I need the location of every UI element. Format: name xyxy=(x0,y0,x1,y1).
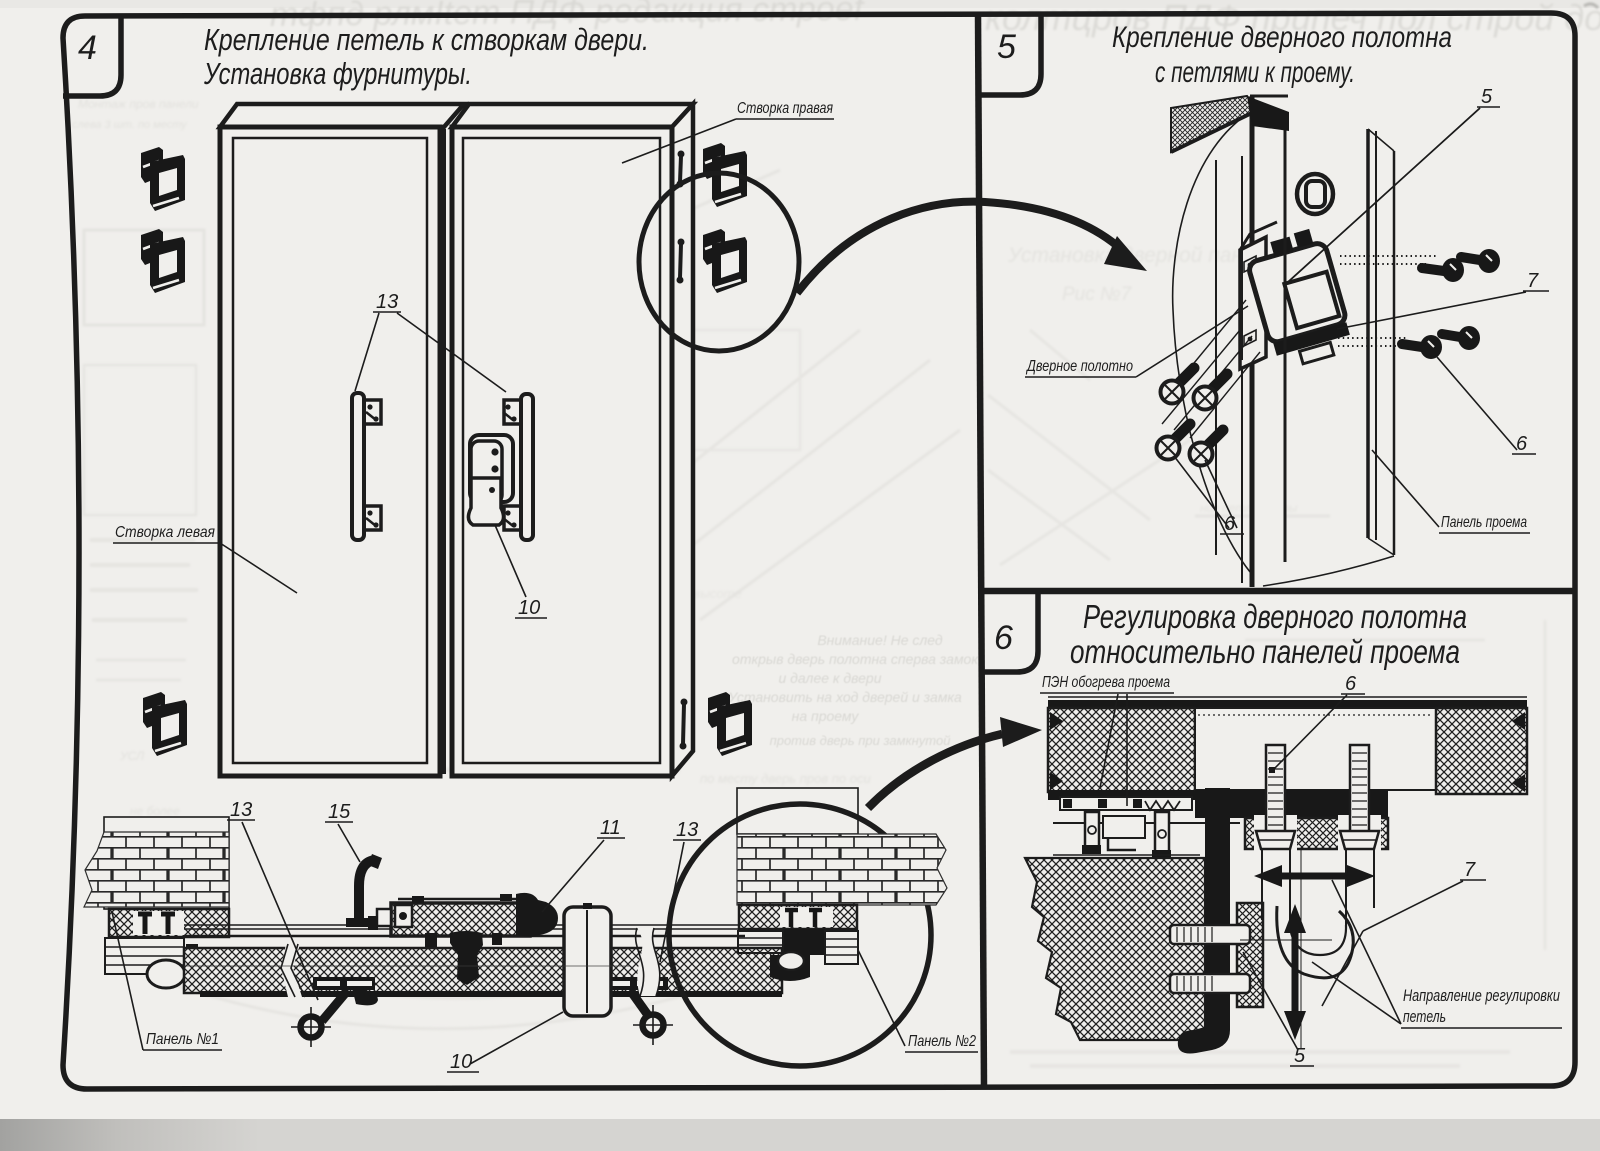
svg-text:Панель проема: Панель проема xyxy=(1441,514,1527,531)
svg-text:5: 5 xyxy=(1481,86,1493,108)
svg-text:открыв дверь полотна сперва за: открыв дверь полотна сперва замок xyxy=(732,651,979,667)
svg-text:11: 11 xyxy=(600,817,621,839)
svg-text:Дверное полотно: Дверное полотно xyxy=(1025,358,1133,375)
svg-text:Установить на ход дверей и зам: Установить на ход дверей и замка xyxy=(727,689,962,705)
svg-text:Панель №1: Панель №1 xyxy=(146,1031,219,1048)
svg-text:ПЭН обогрева проема: ПЭН обогрева проема xyxy=(1042,674,1170,691)
svg-text:10: 10 xyxy=(450,1051,472,1073)
svg-text:слева 3 шт. по месту: слева 3 шт. по месту xyxy=(72,119,188,131)
svg-text:13: 13 xyxy=(376,291,398,313)
svg-text:Рис №7: Рис №7 xyxy=(1062,284,1133,305)
svg-text:Крепление петель к створкам дв: Крепление петель к створкам двери. xyxy=(204,22,649,57)
svg-text:с петлями к проему.: с петлями к проему. xyxy=(1155,56,1355,89)
svg-text:УСЛ: УСЛ xyxy=(119,749,145,763)
svg-text:6: 6 xyxy=(994,619,1013,657)
svg-text:Установка фурнитуры.: Установка фурнитуры. xyxy=(203,56,472,91)
svg-text:и далее к двери: и далее к двери xyxy=(779,670,882,686)
svg-text:Панель №2: Панель №2 xyxy=(908,1033,976,1050)
svg-text:6: 6 xyxy=(1345,673,1357,695)
svg-text:по месту дверь пров по оси: по месту дверь пров по оси xyxy=(700,771,871,786)
svg-text:на проему: на проему xyxy=(792,708,860,724)
svg-text:Монтаж пров панели: Монтаж пров панели xyxy=(78,97,199,111)
svg-text:15: 15 xyxy=(328,801,351,823)
svg-text:петель: петель xyxy=(1403,1008,1446,1026)
svg-text:Регулировка дверного полотна: Регулировка дверного полотна xyxy=(1083,598,1467,635)
svg-text:10: 10 xyxy=(518,597,540,619)
svg-text:5: 5 xyxy=(1294,1045,1306,1067)
svg-text:Створка правая: Створка правая xyxy=(737,100,833,117)
svg-text:13: 13 xyxy=(676,819,698,841)
svg-text:Внимание! Не след: Внимание! Не след xyxy=(817,632,943,648)
svg-text:не более: не более xyxy=(130,804,180,818)
svg-text:Направление регулировки: Направление регулировки xyxy=(1403,987,1560,1005)
svg-text:4: 4 xyxy=(78,29,97,67)
svg-text:6: 6 xyxy=(1516,433,1528,455)
svg-text:относительно панелей проема: относительно панелей проема xyxy=(1070,633,1460,670)
svg-text:13: 13 xyxy=(230,799,252,821)
svg-text:5: 5 xyxy=(997,28,1016,66)
svg-text:против дверь при замкнутой: против дверь при замкнутой xyxy=(770,733,951,748)
svg-text:Крепление дверного полотна: Крепление дверного полотна xyxy=(1112,21,1452,54)
svg-text:Створка левая: Створка левая xyxy=(115,524,215,541)
svg-text:7: 7 xyxy=(1464,859,1476,881)
svg-text:Установка дверной панели: Установка дверной панели xyxy=(1007,244,1278,267)
svg-text:7: 7 xyxy=(1527,270,1539,292)
